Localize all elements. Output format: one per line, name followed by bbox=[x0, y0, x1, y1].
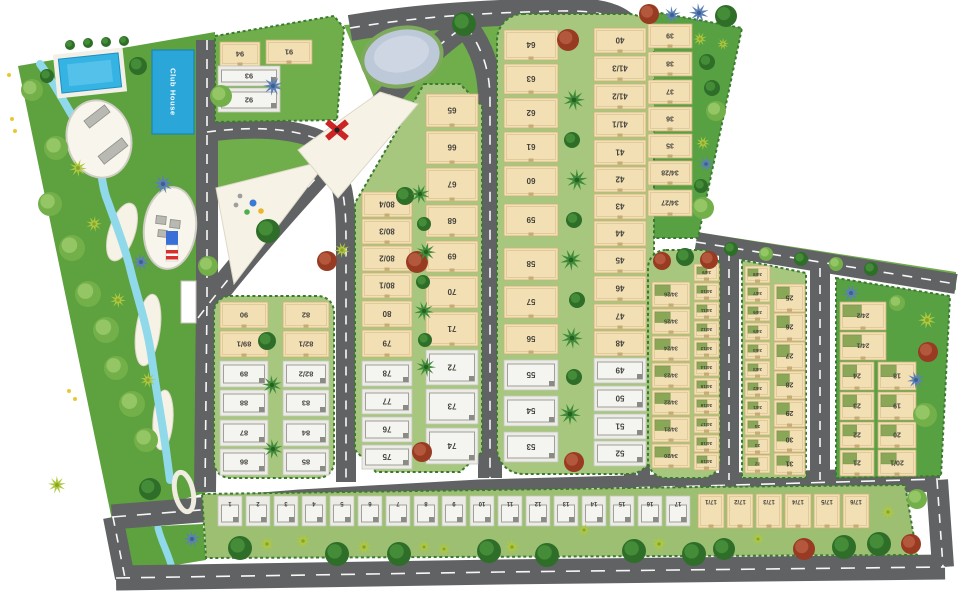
plot-34/14: 34/14 bbox=[694, 359, 719, 376]
service-truck-stripe bbox=[166, 256, 178, 260]
plot-20: 20 bbox=[878, 422, 916, 448]
plot-19: 19 bbox=[878, 392, 916, 420]
flower-dot bbox=[13, 129, 17, 133]
light-tree-highlight bbox=[212, 87, 225, 100]
plot-entry-notch bbox=[796, 525, 801, 528]
plot-34/2: 34/2 bbox=[745, 380, 770, 397]
plot-37: 37 bbox=[648, 80, 692, 104]
plot-number: 54 bbox=[526, 406, 535, 415]
dark-tree-highlight bbox=[84, 39, 90, 45]
plot-entry-notch bbox=[767, 525, 772, 528]
plot-number: 61 bbox=[526, 142, 535, 151]
plot-15: 15 bbox=[610, 496, 634, 526]
plot-86: 86 bbox=[220, 449, 268, 475]
plot-number: 34/25 bbox=[664, 318, 678, 324]
plot-number: 89 bbox=[240, 369, 248, 378]
plot-number: 34/6 bbox=[753, 310, 762, 315]
plot-number: 68 bbox=[447, 216, 456, 225]
plot-number: 80/2 bbox=[379, 254, 395, 263]
house-core bbox=[637, 374, 642, 379]
palm-tree-center bbox=[849, 291, 853, 295]
plot-90: 90 bbox=[220, 302, 268, 328]
plot-24/1: 24/1 bbox=[840, 332, 886, 360]
light-tree-highlight bbox=[78, 283, 94, 299]
plot-number: 34/1 bbox=[753, 405, 762, 410]
plot-number: 28 bbox=[786, 380, 794, 387]
plot-number: 33 bbox=[755, 443, 761, 448]
light-tree-highlight bbox=[62, 237, 78, 253]
plot-4: 4 bbox=[302, 496, 326, 526]
plot-number: 41/3 bbox=[612, 64, 628, 73]
plot-number: 23 bbox=[853, 401, 861, 408]
plot-17/5: 17/5 bbox=[814, 494, 840, 528]
house-core bbox=[373, 517, 378, 522]
plot-65: 65 bbox=[426, 94, 478, 127]
plot-entry-notch bbox=[787, 396, 792, 399]
plot-number: 64 bbox=[526, 40, 535, 49]
plot-34/6: 34/6 bbox=[745, 304, 770, 321]
plot-number: 17/4 bbox=[792, 498, 804, 504]
plot-entry-notch bbox=[529, 277, 534, 280]
plot-number: 57 bbox=[526, 297, 535, 306]
plot-34/16: 34/16 bbox=[694, 397, 719, 414]
house-core bbox=[259, 466, 264, 471]
plot-entry-notch bbox=[787, 424, 792, 427]
plot-number: 34/8 bbox=[753, 272, 762, 277]
plot-entry-notch bbox=[738, 525, 743, 528]
plot-6: 6 bbox=[358, 496, 382, 526]
plot-entry-notch bbox=[755, 280, 760, 283]
plot-entry-notch bbox=[855, 417, 860, 420]
plot-number: 34/10 bbox=[700, 289, 712, 294]
plot-26: 26 bbox=[774, 313, 805, 341]
plot-number: 41/1 bbox=[612, 120, 628, 129]
palm-tree-center bbox=[756, 537, 759, 540]
plot-number: 17 bbox=[674, 500, 681, 506]
house-core bbox=[345, 517, 350, 522]
plot-entry-notch bbox=[529, 233, 534, 236]
dark-tree-highlight bbox=[258, 221, 272, 235]
plot-17/3: 17/3 bbox=[756, 494, 782, 528]
plot-entry-notch bbox=[755, 432, 760, 435]
plot-number: 56 bbox=[526, 334, 535, 343]
plot-entry-notch bbox=[450, 124, 455, 127]
plot-34/5: 34/5 bbox=[745, 323, 770, 340]
plot-number: 17/6 bbox=[850, 498, 862, 504]
palm-tree-center bbox=[301, 539, 305, 543]
plot-entry-notch bbox=[304, 354, 309, 357]
plot-number: 34/9 bbox=[702, 270, 711, 275]
plot-entry-notch bbox=[529, 193, 534, 196]
plot-number: 34/27 bbox=[661, 198, 679, 205]
plot-number: 41 bbox=[615, 148, 624, 157]
plot-34/27: 34/27 bbox=[648, 190, 692, 216]
plot-number: 34/5 bbox=[753, 329, 762, 334]
plot-number: 65 bbox=[447, 106, 456, 115]
plot-entry-notch bbox=[669, 358, 674, 361]
plot-43: 43 bbox=[594, 194, 646, 219]
palm-tree-center bbox=[697, 11, 701, 15]
dark-tree-highlight bbox=[568, 370, 578, 380]
dark-tree-highlight bbox=[566, 133, 576, 143]
dark-tree-highlight bbox=[131, 59, 142, 70]
flower-dot bbox=[67, 389, 71, 393]
plot-number: 78 bbox=[382, 369, 391, 378]
plot-88: 88 bbox=[220, 390, 268, 416]
house-core bbox=[625, 517, 630, 522]
red-tree-highlight bbox=[641, 6, 653, 18]
plot-entry-notch bbox=[450, 234, 455, 237]
light-tree-highlight bbox=[46, 138, 60, 152]
dark-tree-highlight bbox=[327, 544, 341, 558]
plot-number: 92 bbox=[245, 95, 253, 104]
plot-33: 33 bbox=[745, 437, 770, 454]
plot-number: 62 bbox=[526, 108, 535, 117]
house-core bbox=[485, 517, 490, 522]
house-core bbox=[401, 517, 406, 522]
plot-number: 93 bbox=[245, 71, 253, 80]
plot-number: 73 bbox=[447, 402, 456, 411]
plot-entry-notch bbox=[529, 159, 534, 162]
light-tree-highlight bbox=[106, 358, 120, 372]
plot-number: 49 bbox=[615, 366, 624, 375]
plot-73: 73 bbox=[426, 389, 478, 424]
plot-entry-notch bbox=[385, 295, 390, 298]
dark-tree-highlight bbox=[795, 253, 803, 261]
house-core bbox=[681, 517, 686, 522]
plot-entry-notch bbox=[668, 213, 673, 216]
plot-entry-notch bbox=[529, 351, 534, 354]
plot-entry-notch bbox=[618, 353, 623, 356]
plot-entry-notch bbox=[704, 373, 709, 376]
plot-number: 79 bbox=[382, 339, 391, 348]
palm-tree-center bbox=[55, 483, 59, 487]
plot-entry-notch bbox=[669, 304, 674, 307]
plot-entry-notch bbox=[787, 338, 792, 341]
plot-54: 54 bbox=[504, 396, 558, 426]
palm-tree-center bbox=[190, 537, 194, 541]
plot-63: 63 bbox=[504, 64, 558, 94]
plot-entry-notch bbox=[755, 356, 760, 359]
plot-77: 77 bbox=[362, 389, 412, 414]
plot-34/19: 34/19 bbox=[694, 453, 719, 470]
plot-number: 34/26 bbox=[664, 291, 678, 297]
house-core bbox=[549, 417, 554, 422]
plot-number: 17/2 bbox=[734, 498, 746, 504]
plot-34/25: 34/25 bbox=[652, 309, 690, 334]
plot-number: 34/13 bbox=[700, 346, 712, 351]
palm-tree-center bbox=[271, 84, 275, 88]
plot-number: 24 bbox=[853, 371, 861, 378]
plot-number: 34/12 bbox=[700, 327, 712, 332]
plot-number: 58 bbox=[526, 259, 535, 268]
plot-42: 42 bbox=[594, 167, 646, 192]
palm-tree-center bbox=[572, 98, 577, 103]
dark-tree-highlight bbox=[454, 14, 468, 28]
light-tree-highlight bbox=[96, 319, 112, 335]
dark-tree-highlight bbox=[260, 334, 271, 345]
plot-94: 94 bbox=[220, 42, 260, 66]
pool-water-highlight bbox=[67, 60, 113, 86]
plot-entry-notch bbox=[787, 449, 792, 452]
red-tree-highlight bbox=[414, 444, 426, 456]
plot-entry-notch bbox=[304, 325, 309, 328]
light-tree-highlight bbox=[830, 258, 838, 266]
plot-80/3: 80/3 bbox=[362, 219, 412, 244]
dark-tree-highlight bbox=[834, 537, 848, 551]
plot-number: 34/28 bbox=[661, 168, 679, 175]
plot-number: 17/3 bbox=[763, 498, 775, 504]
plot-82/1: 82/1 bbox=[283, 331, 329, 357]
plot-entry-notch bbox=[529, 57, 534, 60]
house-core bbox=[469, 415, 474, 420]
plot-entry-notch bbox=[385, 324, 390, 327]
palm-tree-center bbox=[92, 222, 96, 226]
palm-tree-center bbox=[914, 378, 918, 382]
house-core bbox=[233, 517, 238, 522]
plot-number: 19 bbox=[893, 401, 901, 408]
plot-entry-notch bbox=[450, 305, 455, 308]
plot-entry-notch bbox=[861, 327, 866, 330]
plot-number: 69 bbox=[447, 252, 456, 261]
plot-number: 89/1 bbox=[237, 339, 252, 348]
plot-number: 80 bbox=[382, 309, 391, 318]
plot-34/3: 34/3 bbox=[745, 361, 770, 378]
plot-47: 47 bbox=[594, 304, 646, 329]
dark-tree-highlight bbox=[120, 37, 126, 43]
light-tree-highlight bbox=[40, 194, 54, 208]
plot-number: 34/17 bbox=[700, 422, 712, 427]
plot-number: 13 bbox=[562, 500, 569, 506]
red-tree-highlight bbox=[920, 344, 932, 356]
plot-entry-notch bbox=[238, 63, 243, 66]
plot-number: 17/5 bbox=[821, 498, 833, 504]
plot-entry-notch bbox=[755, 337, 760, 340]
plot-20/1: 20/1 bbox=[878, 450, 916, 476]
plot-entry-notch bbox=[861, 357, 866, 360]
plot-number: 37 bbox=[666, 87, 674, 94]
playground-equipment bbox=[258, 208, 264, 214]
plot-entry-notch bbox=[618, 216, 623, 219]
light-tree-highlight bbox=[122, 393, 138, 409]
service-truck-cab bbox=[166, 231, 178, 245]
house-core bbox=[569, 517, 574, 522]
toy-x-hub bbox=[334, 127, 339, 132]
plot-number: 34/22 bbox=[664, 399, 678, 405]
palm-tree-center bbox=[698, 37, 701, 40]
palm-tree-center bbox=[146, 378, 150, 382]
plot-entry-notch bbox=[668, 101, 673, 104]
palm-tree-center bbox=[418, 192, 422, 196]
plot-number: 66 bbox=[447, 143, 456, 152]
plot-68: 68 bbox=[426, 205, 478, 237]
plot-number: 70 bbox=[447, 287, 456, 296]
dark-tree-highlight bbox=[41, 70, 49, 78]
plot-entry-notch bbox=[450, 269, 455, 272]
plot-40: 40 bbox=[594, 28, 646, 53]
plot-number: 25 bbox=[786, 293, 794, 300]
plot-entry-notch bbox=[704, 392, 709, 395]
plot-67: 67 bbox=[426, 168, 478, 201]
plot-number: 46 bbox=[615, 284, 624, 293]
plot-24/2: 24/2 bbox=[840, 302, 886, 330]
plot-number: 31 bbox=[786, 459, 794, 466]
dark-tree-highlight bbox=[715, 540, 728, 553]
plot-number: 41/2 bbox=[612, 92, 628, 101]
house-core bbox=[637, 430, 642, 435]
palm-tree-center bbox=[568, 412, 573, 417]
plot-entry-notch bbox=[618, 106, 623, 109]
house-core bbox=[403, 433, 408, 438]
plot-number: 53 bbox=[526, 442, 535, 451]
dark-tree-highlight bbox=[869, 534, 883, 548]
plot-41: 41 bbox=[594, 140, 646, 165]
plot-number: 34/11 bbox=[700, 308, 712, 313]
plot-70: 70 bbox=[426, 276, 478, 308]
house-core bbox=[320, 378, 325, 383]
red-tree-highlight bbox=[702, 253, 713, 264]
plot-entry-notch bbox=[242, 354, 247, 357]
plot-53: 53 bbox=[504, 432, 558, 462]
dark-tree-highlight bbox=[479, 541, 493, 555]
plot-entry-notch bbox=[704, 430, 709, 433]
dark-tree-highlight bbox=[701, 55, 711, 65]
plot-16: 16 bbox=[638, 496, 662, 526]
plot-number: 50 bbox=[615, 394, 624, 403]
plot-entry-notch bbox=[668, 182, 673, 185]
plot-number: 34/20 bbox=[664, 452, 678, 458]
light-tree-highlight bbox=[760, 248, 768, 256]
plot-entry-notch bbox=[618, 298, 623, 301]
house-core bbox=[597, 517, 602, 522]
plot-number: 39 bbox=[666, 31, 674, 38]
plot-number: 86 bbox=[240, 457, 248, 466]
dark-tree-highlight bbox=[230, 538, 244, 552]
palm-tree-center bbox=[424, 365, 428, 369]
plot-number: 45 bbox=[615, 256, 624, 265]
plot-entry-notch bbox=[704, 354, 709, 357]
plot-entry-notch bbox=[755, 394, 760, 397]
plot-34/23: 34/23 bbox=[652, 363, 690, 388]
plot-number: 44 bbox=[615, 229, 624, 238]
plot-75: 75 bbox=[362, 445, 412, 469]
palm-tree-center bbox=[422, 309, 426, 313]
dark-tree-highlight bbox=[624, 541, 638, 555]
plot-entry-notch bbox=[704, 467, 709, 470]
dark-tree-highlight bbox=[66, 41, 72, 47]
plot-32: 32 bbox=[745, 455, 770, 473]
plot-49: 49 bbox=[594, 358, 646, 383]
house-core bbox=[320, 437, 325, 442]
palm-tree-center bbox=[424, 250, 428, 254]
dark-tree-highlight bbox=[102, 38, 108, 44]
plot-number: 48 bbox=[615, 339, 624, 348]
plot-number: 55 bbox=[526, 370, 535, 379]
plot-34: 34 bbox=[745, 418, 770, 435]
house-core bbox=[259, 407, 264, 412]
palm-tree-center bbox=[76, 166, 80, 170]
plot-34/26: 34/26 bbox=[652, 282, 690, 307]
plot-number: 80/3 bbox=[379, 227, 395, 236]
plot-entry-notch bbox=[668, 128, 673, 131]
plot-entry-notch bbox=[529, 125, 534, 128]
plot-5: 5 bbox=[330, 496, 354, 526]
plot-56: 56 bbox=[504, 324, 558, 354]
house-core bbox=[259, 378, 264, 383]
plot-34/11: 34/11 bbox=[694, 302, 719, 319]
plot-entry-notch bbox=[825, 525, 830, 528]
plot-entry-notch bbox=[385, 354, 390, 357]
plot-number: 82 bbox=[302, 310, 310, 319]
house-core bbox=[469, 455, 474, 460]
plot-87: 87 bbox=[220, 420, 268, 446]
dark-tree-highlight bbox=[537, 545, 551, 559]
plot-number: 20 bbox=[893, 430, 901, 437]
plot-58: 58 bbox=[504, 248, 558, 280]
red-tree-highlight bbox=[319, 253, 331, 265]
plot-17/1: 17/1 bbox=[698, 494, 724, 528]
plot-entry-notch bbox=[669, 385, 674, 388]
plot-number: 43 bbox=[615, 202, 624, 211]
plot-34/28: 34/28 bbox=[648, 161, 692, 185]
plot-entry-notch bbox=[855, 445, 860, 448]
plot-34/7: 34/7 bbox=[745, 285, 770, 302]
plot-number: 34/4 bbox=[753, 348, 762, 353]
plot-25: 25 bbox=[774, 284, 805, 312]
dark-tree-highlight bbox=[417, 276, 425, 284]
plot-74: 74 bbox=[426, 428, 478, 464]
plot-number: 34/23 bbox=[664, 372, 678, 378]
plot-85: 85 bbox=[283, 449, 329, 475]
house-core bbox=[637, 402, 642, 407]
plot-31: 31 bbox=[774, 453, 805, 475]
plot-41/1: 41/1 bbox=[594, 112, 646, 137]
plot-59: 59 bbox=[504, 204, 558, 236]
plot-number: 84 bbox=[301, 428, 310, 437]
plot-80: 80 bbox=[362, 301, 412, 327]
plot-39: 39 bbox=[648, 24, 692, 48]
plot-entry-notch bbox=[895, 387, 900, 390]
plot-entry-notch bbox=[895, 445, 900, 448]
plot-76: 76 bbox=[362, 417, 412, 442]
plot-number: 67 bbox=[447, 180, 456, 189]
red-tree-highlight bbox=[903, 536, 915, 548]
plot-number: 34/2 bbox=[753, 386, 762, 391]
plot-number: 34/7 bbox=[753, 291, 762, 296]
plot-number: 71 bbox=[447, 324, 456, 333]
palm-tree-center bbox=[422, 545, 425, 548]
house-core bbox=[317, 517, 322, 522]
plot-number: 82/1 bbox=[299, 339, 314, 348]
plot-52: 52 bbox=[594, 441, 646, 466]
house-core bbox=[513, 517, 518, 522]
dark-tree-highlight bbox=[706, 81, 716, 91]
plot-entry-notch bbox=[709, 525, 714, 528]
dark-tree-highlight bbox=[725, 243, 733, 251]
plot-entry-notch bbox=[787, 309, 792, 312]
plot-34/20: 34/20 bbox=[652, 444, 690, 468]
plot-13: 13 bbox=[554, 496, 578, 526]
light-tree-highlight bbox=[136, 430, 150, 444]
plot-11: 11 bbox=[498, 496, 522, 526]
plot-number: 35 bbox=[666, 141, 674, 148]
palm-tree-center bbox=[116, 298, 120, 302]
plot-entry-notch bbox=[385, 268, 390, 271]
palm-tree-center bbox=[510, 545, 514, 549]
house-core bbox=[429, 517, 434, 522]
red-tree-highlight bbox=[408, 253, 421, 266]
plot-number: 74 bbox=[447, 441, 456, 450]
